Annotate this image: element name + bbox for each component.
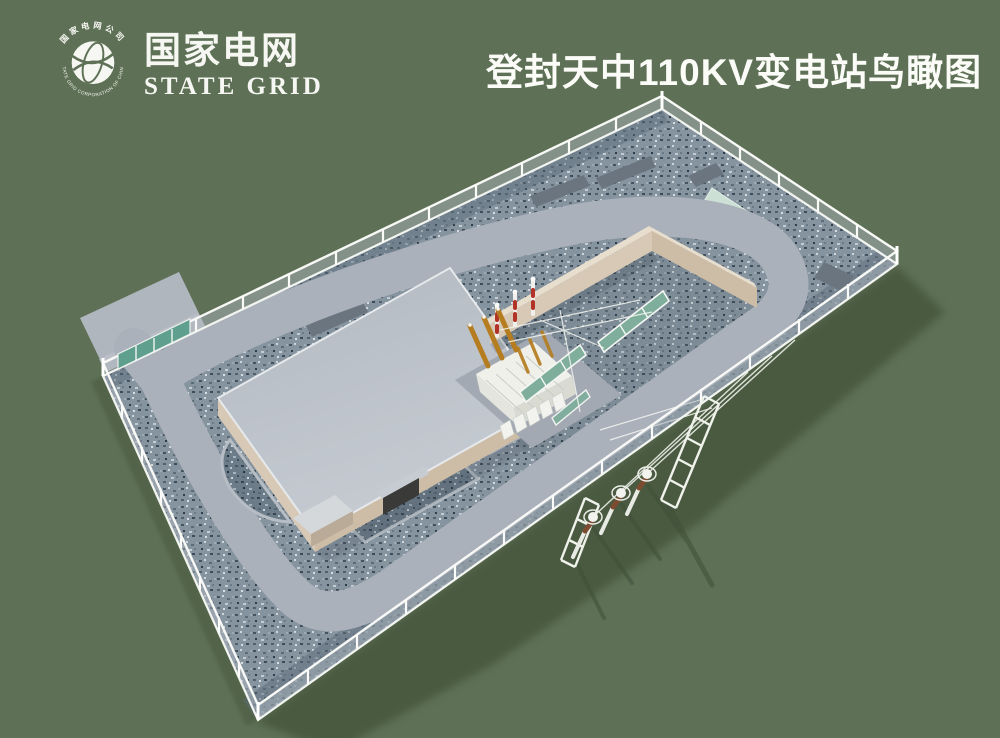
logo-text: 国家电网 STATE GRID bbox=[144, 20, 324, 101]
page-title: 登封天中110KV变电站鸟瞰图 bbox=[486, 42, 982, 96]
header: 国家电网公司 STATE GRID CORPORATION OF CHINA 国… bbox=[0, 0, 1000, 110]
logo-name-en: STATE GRID bbox=[144, 73, 324, 101]
substation-rendering bbox=[0, 0, 1000, 738]
state-grid-logo: 国家电网公司 STATE GRID CORPORATION OF CHINA 国… bbox=[52, 20, 324, 102]
logo-name-cn: 国家电网 bbox=[144, 32, 324, 71]
state-grid-emblem-icon: 国家电网公司 STATE GRID CORPORATION OF CHINA bbox=[52, 20, 134, 102]
slide: 国家电网公司 STATE GRID CORPORATION OF CHINA 国… bbox=[0, 0, 1000, 738]
emblem-globe bbox=[72, 40, 115, 84]
